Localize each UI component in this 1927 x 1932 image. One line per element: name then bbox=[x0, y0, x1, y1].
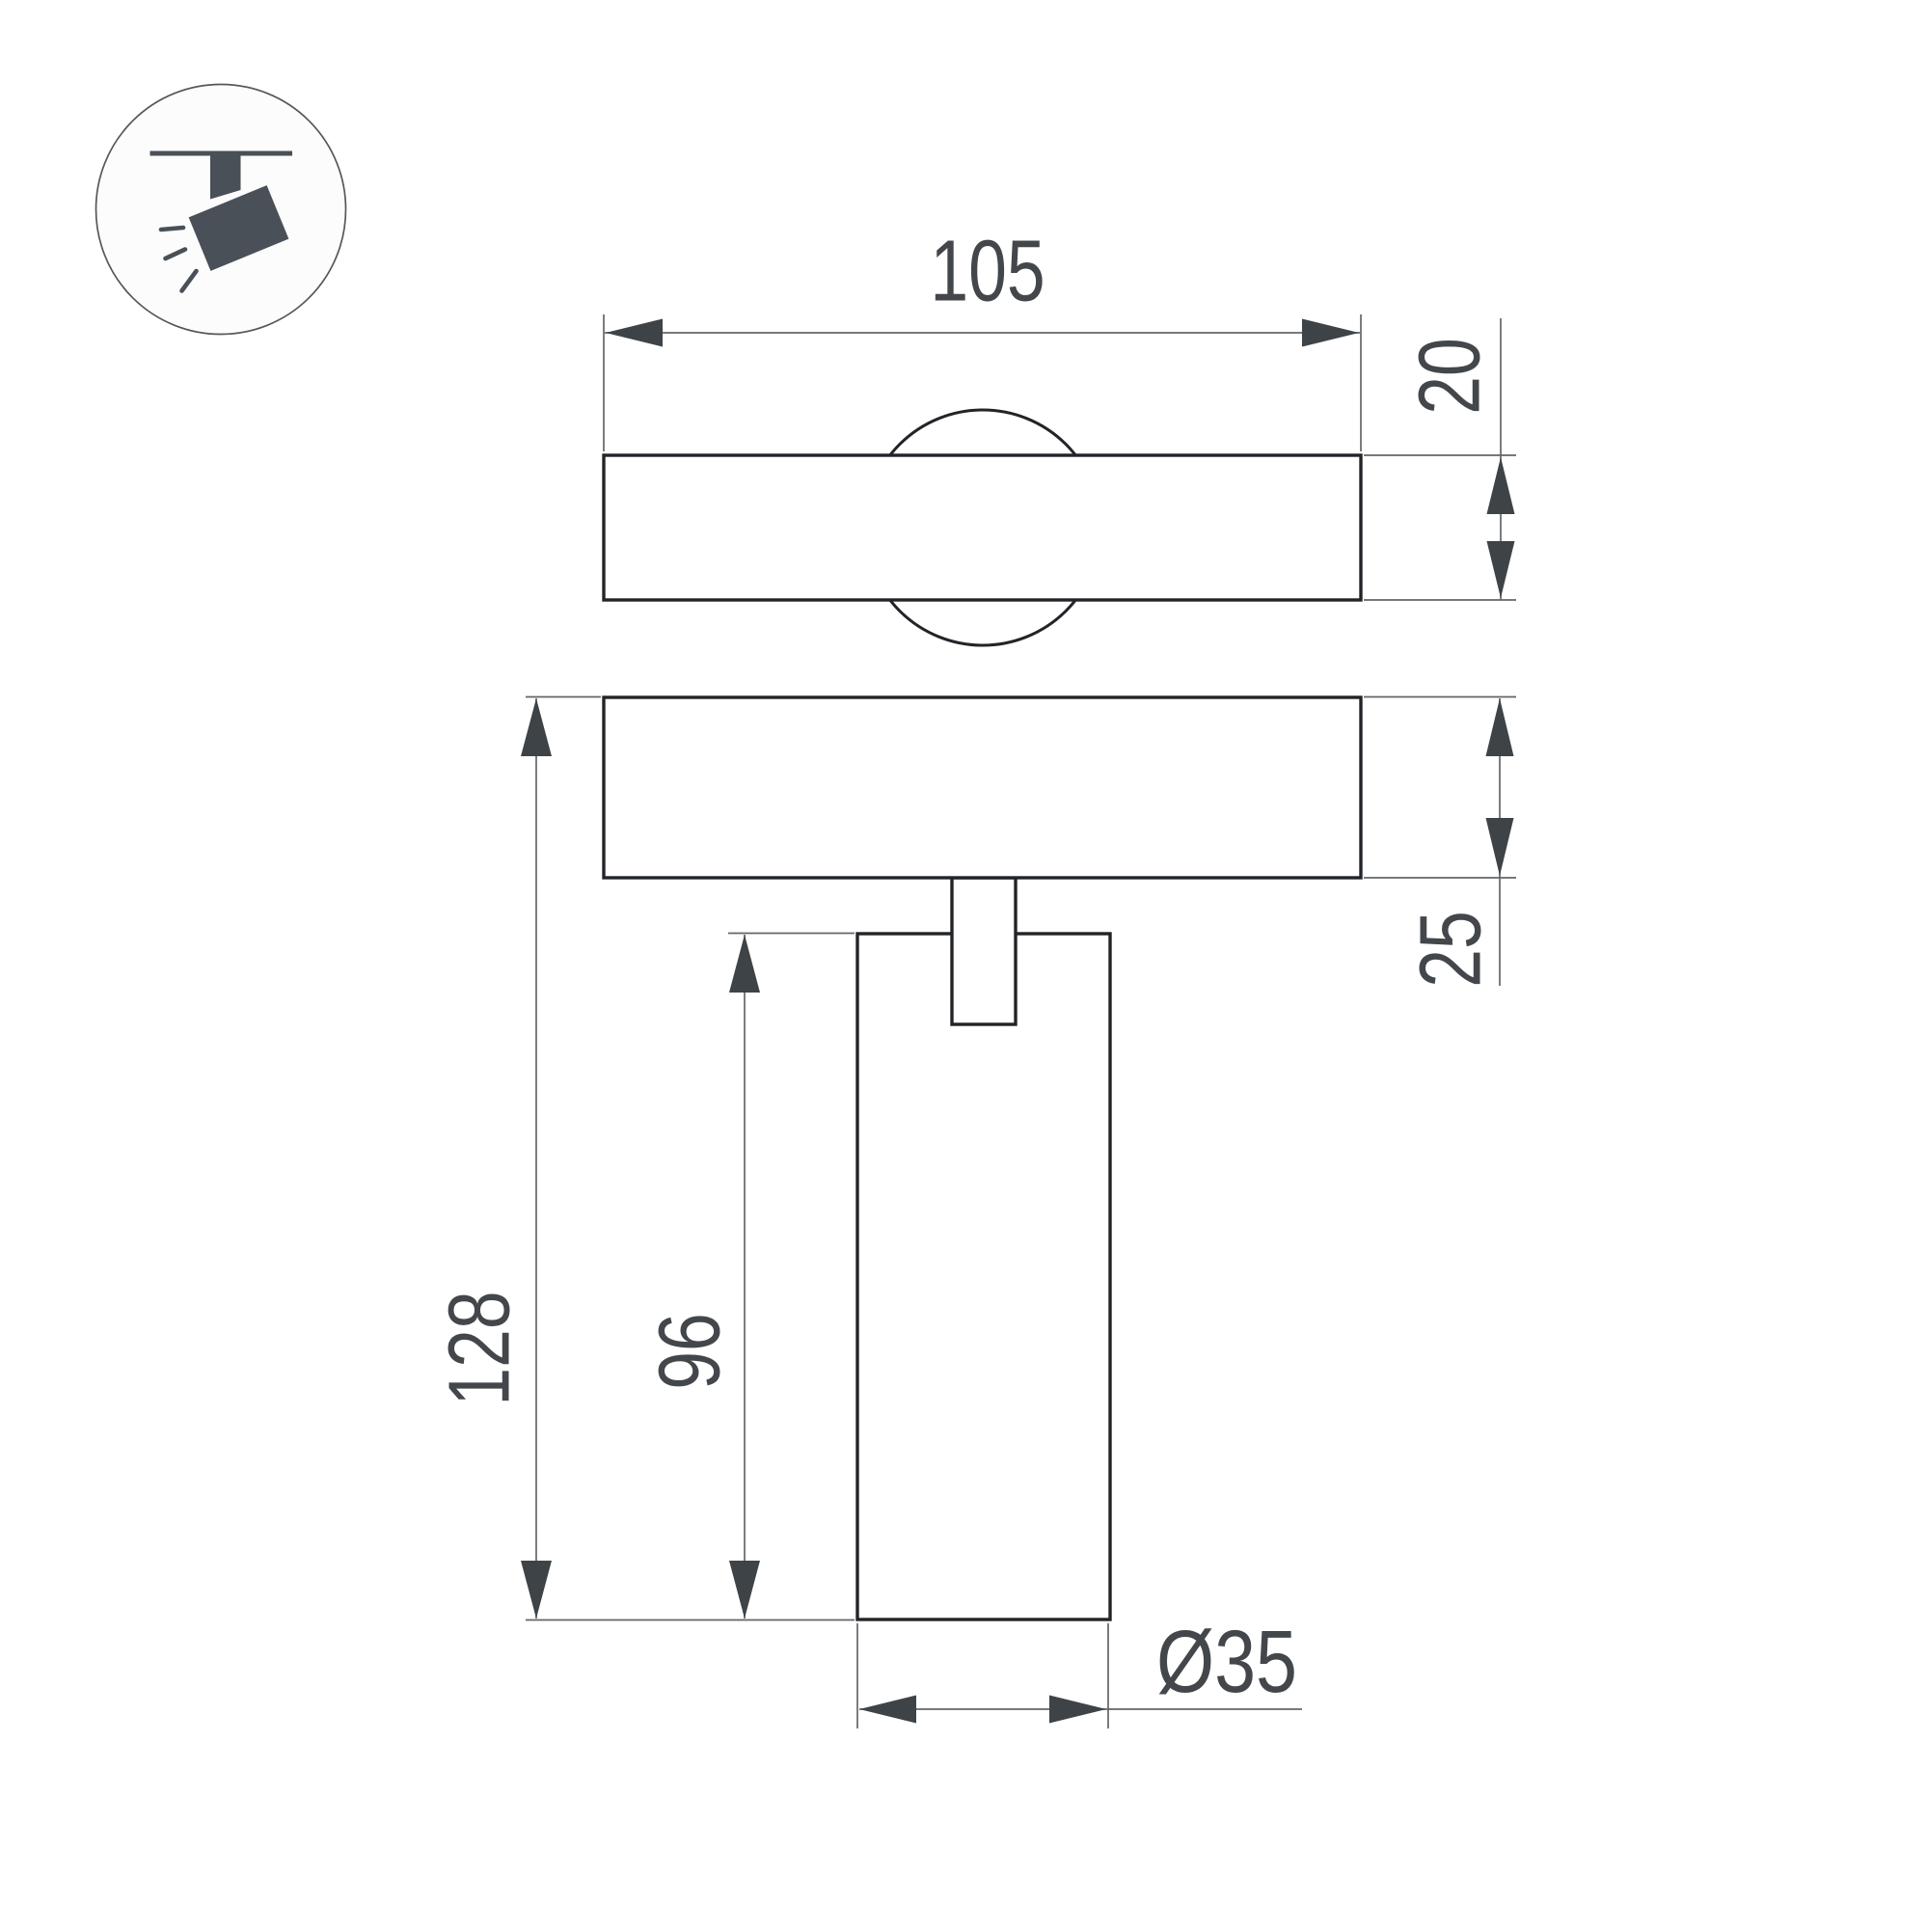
svg-text:20: 20 bbox=[1401, 338, 1499, 415]
svg-text:128: 128 bbox=[431, 1291, 529, 1405]
svg-text:96: 96 bbox=[641, 1313, 739, 1390]
svg-text:Ø35: Ø35 bbox=[1156, 1613, 1297, 1712]
svg-text:25: 25 bbox=[1402, 911, 1500, 988]
svg-text:105: 105 bbox=[930, 223, 1045, 320]
